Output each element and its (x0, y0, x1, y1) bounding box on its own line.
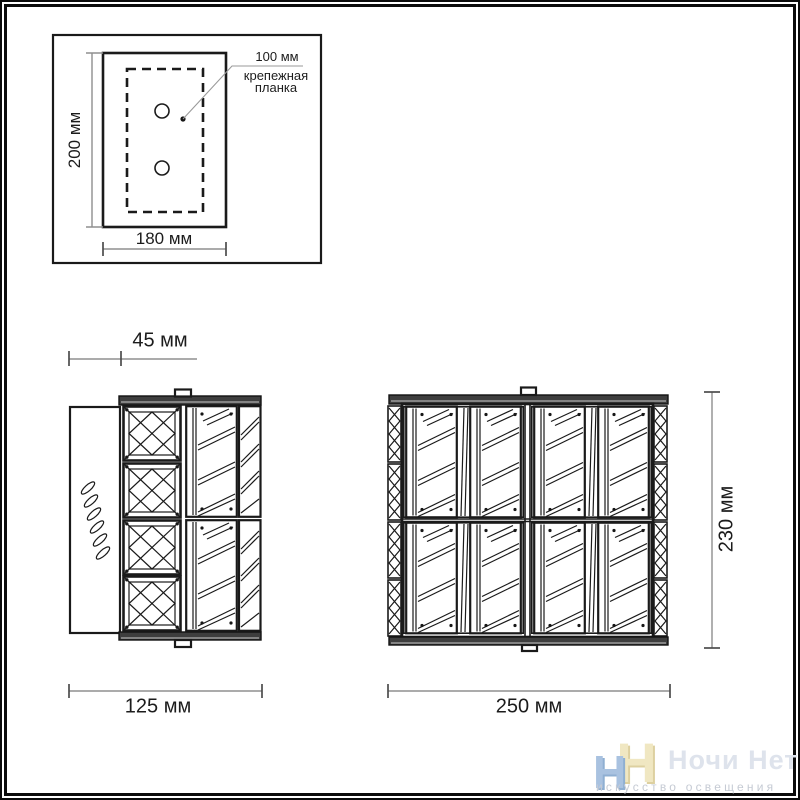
logo-tagline: искусство освещения (596, 780, 776, 794)
side-width-label: 125 мм (125, 696, 191, 719)
top-tab (521, 388, 536, 396)
bottom-tab (175, 640, 191, 647)
plate-label-line2: планка (255, 80, 297, 95)
front-height-label: 230 мм (716, 486, 739, 552)
mounting-height-label: 200 мм (65, 112, 85, 168)
logo-brand-text: Ночи Нет (668, 745, 798, 776)
front-width-label: 250 мм (496, 696, 562, 719)
bottom-bar (119, 632, 261, 640)
technical-drawing (0, 0, 800, 800)
side-view-drawing (69, 351, 262, 698)
bottom-bar (389, 637, 668, 645)
hole-spacing-label: 100 мм (255, 51, 298, 63)
backplate (70, 407, 120, 633)
top-bar (389, 395, 668, 404)
front-view-drawing (388, 388, 720, 699)
bottom-tab (522, 645, 537, 651)
mounting-plate-label: крепежная планка (244, 70, 308, 94)
top-tab (175, 390, 191, 397)
mounting-width-label: 180 мм (136, 229, 192, 249)
side-depth-label: 45 мм (132, 330, 187, 353)
